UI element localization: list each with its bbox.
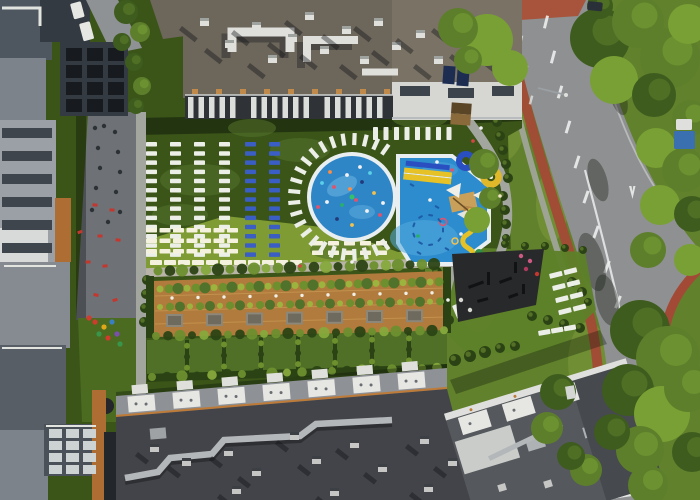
sun-lounger (146, 197, 157, 202)
swimmer (335, 217, 339, 221)
terrace-dormer (176, 380, 193, 390)
hvac-lid (330, 488, 339, 491)
roof-panel (448, 88, 474, 98)
hedge-row-bush (248, 263, 260, 275)
sun-lounger (170, 160, 181, 165)
hvac-lid (424, 484, 433, 487)
sun-lounger (194, 243, 205, 248)
sun-lounger (194, 160, 205, 165)
pergola-inner (288, 314, 301, 323)
planter-shrub (300, 281, 309, 290)
sun-lounger (178, 260, 190, 265)
planter-shrub (265, 283, 272, 290)
sun-lounger (187, 228, 198, 233)
hedge-row-bush (163, 331, 173, 341)
hedge-highlight (585, 299, 589, 303)
play-equipment (117, 341, 122, 346)
balcony (230, 97, 236, 118)
sun-lounger (200, 249, 211, 254)
sun-lounger (170, 206, 181, 211)
sun-lounger (160, 239, 171, 244)
sun-lounger-blue (245, 225, 256, 230)
planter-shrub (316, 300, 324, 308)
cafe-table (378, 292, 381, 295)
pool-fountain (350, 195, 355, 200)
sun-lounger (146, 160, 157, 165)
swimmer (345, 173, 349, 177)
hedge-row-bush (174, 330, 185, 341)
sun-lounger (170, 151, 181, 156)
hedge-highlight (502, 160, 507, 165)
sun-lounger (220, 260, 232, 265)
tree-highlight (506, 55, 524, 73)
roof-window (108, 65, 124, 78)
swimmer (350, 223, 354, 227)
planter-shrub (308, 280, 319, 291)
swimmer (316, 205, 320, 209)
hedge-row-bush (370, 261, 379, 270)
cafe-table (404, 292, 407, 295)
aerial-resort-photo (0, 0, 700, 500)
roof-window (83, 429, 96, 438)
sun-lounger (214, 239, 225, 244)
hedge-row-bush (201, 265, 212, 276)
hvac-lid (268, 55, 277, 58)
hedge-row-bush (176, 264, 188, 276)
hedge-row-bush (237, 264, 248, 275)
sun-lounger (219, 206, 230, 211)
sun-lounger (187, 249, 198, 254)
sun-lounger-blue (245, 197, 256, 202)
planter-shrub (325, 299, 335, 309)
patio-table (118, 170, 122, 174)
sun-lounger (394, 127, 399, 140)
hedge-row-bush (368, 328, 376, 336)
hedge-row-bush (252, 369, 262, 379)
sun-lounger (219, 243, 230, 248)
cafe-table (300, 294, 303, 297)
hedge-highlight (503, 235, 507, 239)
hut-roof-dark (451, 102, 472, 114)
hedge-row-bush (262, 264, 271, 273)
balcony (346, 97, 352, 118)
hedge-row-bush (426, 325, 437, 336)
sun-lounger (373, 127, 378, 140)
roof-panel (492, 86, 514, 96)
sun-lounger (187, 239, 198, 244)
hedge-row-bush (152, 332, 160, 340)
play-equipment (96, 331, 101, 336)
sun-lounger (200, 239, 211, 244)
swimmer (348, 187, 352, 191)
pedestrian (471, 139, 475, 143)
hedge-row-bush (334, 262, 343, 271)
hedge-row-bush (199, 330, 209, 340)
gym-item (519, 254, 523, 258)
roof-window (66, 99, 82, 112)
tree-highlight (123, 3, 135, 15)
play-equipment (109, 319, 114, 324)
sun-lounger-blue (245, 252, 256, 257)
sun-lounger (170, 188, 181, 193)
truck-trailer (674, 131, 695, 149)
sun-lounger (170, 142, 181, 147)
hedge-highlight (451, 356, 456, 361)
tree-highlight (582, 458, 598, 474)
planter-shrub (346, 281, 353, 288)
hedge-highlight (502, 241, 506, 245)
planter-shrub (355, 298, 365, 308)
sun-lounger (227, 249, 238, 254)
sun-lounger (328, 241, 339, 246)
planter-shrub (389, 277, 400, 288)
tree-highlight (608, 419, 626, 437)
hedge-highlight (499, 146, 504, 151)
hedge-row-bush (392, 259, 404, 271)
hvac-lid (360, 56, 369, 59)
sun-lounger-blue (245, 160, 256, 165)
hvac-lid (200, 18, 209, 21)
balcony (251, 97, 257, 118)
planter-shrub (408, 278, 417, 287)
planter-shrub (157, 286, 164, 293)
hvac-lid (312, 456, 321, 459)
planter-shrub (385, 297, 395, 307)
terrace-deck-white (352, 375, 380, 393)
sun-lounger (436, 127, 441, 140)
balcony (325, 97, 331, 118)
red-lounger (92, 203, 97, 206)
hvac-lid (378, 464, 387, 467)
tree-highlight (643, 470, 663, 490)
swimmer (372, 191, 376, 195)
sun-lounger-blue (269, 151, 280, 156)
patio-table (113, 130, 117, 134)
hedge-highlight (580, 247, 584, 251)
hedge-highlight (141, 304, 146, 309)
sun-lounger (219, 170, 230, 175)
hedge-row-bush (440, 326, 448, 334)
hedge-divider-bush (221, 342, 227, 348)
play-equipment (114, 331, 119, 336)
cafe-table (222, 295, 225, 298)
planter-shrub (307, 301, 313, 307)
solar-panel (442, 66, 455, 85)
hedge-divider-bush (221, 364, 227, 370)
hedge-row-bush (356, 260, 368, 272)
planter-shrub (335, 279, 346, 290)
patio-table (102, 124, 106, 128)
hedge-row-bush (212, 263, 224, 275)
terrace-deck-white (397, 371, 425, 389)
sun-lounger (384, 127, 389, 140)
sun-lounger-blue (269, 206, 280, 211)
sun-lounger (173, 239, 184, 244)
terrace-dormer (266, 372, 283, 382)
swimmer (320, 181, 324, 185)
roof-window (2, 128, 52, 138)
cafe-table (430, 291, 433, 294)
building-roof (0, 58, 46, 128)
tree-highlight (132, 55, 141, 64)
play-equipment (86, 315, 91, 320)
hedge-row-bush (406, 260, 415, 269)
patio-table (98, 166, 102, 170)
wood-accent (55, 198, 71, 262)
pedestrian (459, 232, 463, 236)
tree-highlight (474, 210, 487, 223)
sun-lounger (194, 234, 205, 239)
truck-cab (676, 119, 692, 130)
roof-window (49, 453, 62, 462)
hedge-row-bush (193, 372, 201, 380)
swimmer (340, 203, 344, 207)
terrace-dormer (221, 376, 238, 386)
hedge-highlight (466, 352, 471, 357)
balcony (188, 97, 194, 118)
cafe-table (274, 294, 277, 297)
sun-lounger (146, 179, 157, 184)
building-roof (0, 345, 66, 433)
water-highlight (349, 205, 375, 219)
roof-window (66, 82, 82, 95)
patio-table (118, 210, 122, 214)
gym-item (468, 308, 472, 312)
sun-lounger (219, 188, 230, 193)
hedge-divider-bush (295, 361, 301, 367)
hedge-divider-bush (332, 360, 338, 366)
lounger-cluster (146, 228, 238, 254)
red-lounger (98, 235, 103, 238)
sun-lounger (194, 179, 205, 184)
hedge-highlight (560, 320, 565, 325)
sun-lounger-blue (269, 197, 280, 202)
planter-shrub (397, 299, 403, 305)
sun-lounger (146, 188, 157, 193)
hvac-lid (252, 22, 261, 25)
sun-lounger (164, 260, 176, 265)
sun-lounger (219, 160, 230, 165)
skylight (150, 427, 167, 439)
planter-shrub (281, 280, 292, 291)
hedge-highlight (528, 312, 533, 317)
planter-shrub (166, 303, 174, 311)
tree-highlight (649, 79, 671, 101)
sun-lounger (194, 170, 205, 175)
planter-shrub (192, 284, 201, 293)
terrace-dormer (401, 361, 418, 371)
planter-shrub (157, 304, 163, 310)
hedge-highlight (501, 206, 506, 211)
planter-shrub (427, 278, 434, 285)
building-roof (0, 430, 48, 500)
sun-lounger-blue (269, 160, 280, 165)
hedge-divider-bush (406, 346, 412, 352)
sun-lounger (227, 228, 238, 233)
planter-shrub (367, 300, 373, 306)
sun-lounger (426, 127, 431, 140)
hedge-row-bush (309, 262, 320, 273)
hvac-lid (232, 486, 241, 489)
planter-shrub (354, 279, 363, 288)
red-lounger (109, 208, 114, 211)
patio-table (114, 190, 118, 194)
tree-highlight (655, 190, 675, 210)
sun-lounger (194, 142, 205, 147)
sun-lounger (160, 249, 171, 254)
gym-bar (487, 272, 490, 285)
hvac-lid (434, 56, 443, 59)
sun-lounger-blue (245, 206, 256, 211)
sun-lounger (146, 243, 157, 248)
hedge-highlight (140, 318, 145, 323)
patio-table (96, 146, 100, 150)
pedestrian (350, 260, 354, 264)
tree-highlight (608, 62, 632, 86)
terrace-dormer (311, 369, 328, 379)
sun-lounger (170, 179, 181, 184)
hedge-row-bush (148, 373, 156, 381)
dolphin-motif (442, 228, 444, 233)
roof-window (108, 99, 124, 112)
roof-window (83, 465, 96, 474)
roof-window (108, 82, 124, 95)
sun-lounger (146, 170, 157, 175)
sun-lounger (160, 228, 171, 233)
sun-lounger (192, 260, 204, 265)
tree-highlight (138, 25, 148, 35)
sun-lounger (415, 127, 420, 140)
planter-shrub (381, 279, 390, 288)
sun-lounger (194, 188, 205, 193)
planter-shrub (211, 284, 218, 291)
hedge-row-bush (235, 330, 245, 340)
hedge-highlight (562, 245, 566, 249)
hedge-row-bush (210, 329, 221, 340)
pergola-inner (248, 314, 261, 323)
patio-table (116, 150, 120, 154)
planter-shrub (196, 302, 204, 310)
balcony (283, 97, 289, 118)
tree-highlight (634, 432, 658, 456)
tree-highlight (632, 3, 658, 29)
swimmer (354, 198, 358, 202)
tree-highlight (568, 446, 582, 460)
balcony (220, 97, 226, 118)
patio-table (94, 186, 98, 190)
planter-shrub (226, 302, 234, 310)
chimney (384, 89, 390, 94)
planter-shrub (165, 284, 174, 293)
pedestrian (498, 194, 502, 198)
swimmer (360, 180, 364, 184)
sun-lounger-blue (245, 179, 256, 184)
tree-highlight (453, 13, 473, 33)
hedge-row-bush (238, 370, 246, 378)
chimney (288, 89, 294, 94)
sun-lounger (214, 249, 225, 254)
planter-shrub (415, 297, 425, 307)
sun-lounger-blue (245, 142, 256, 147)
balcony (335, 97, 341, 118)
hedge-divider-bush (369, 337, 375, 343)
chimney (360, 89, 366, 94)
terrace-deck-white (217, 387, 245, 405)
hedge-row-bush (282, 328, 293, 339)
sun-lounger (146, 216, 157, 221)
tree-highlight (660, 334, 692, 366)
terrace-dormer (356, 365, 373, 375)
sun-lounger (405, 127, 410, 140)
sun-lounger-blue (245, 243, 256, 248)
pedestrian (479, 126, 483, 130)
hedge-row-bush (207, 370, 217, 380)
hedge-row-bush (283, 369, 291, 377)
planter-shrub (273, 281, 282, 290)
tree-highlight (480, 153, 495, 168)
sun-lounger (170, 243, 181, 248)
sun-lounger (150, 260, 162, 265)
planter-shrub (184, 285, 191, 292)
sun-lounger (146, 228, 157, 233)
roof-window (66, 441, 79, 450)
gym-item (524, 267, 528, 271)
planter-shrub (435, 277, 444, 286)
patio-table (90, 208, 94, 212)
roof-window (49, 441, 62, 450)
swimmer (325, 200, 329, 204)
planter-shrub (295, 299, 305, 309)
red-lounger (115, 238, 120, 242)
roof-window (87, 99, 103, 112)
hedge-row-bush (284, 262, 296, 274)
swimmer (435, 160, 439, 164)
hedge-row-bush (390, 326, 401, 337)
terrace-deck-white (127, 394, 155, 412)
lawn-mottle (228, 119, 276, 137)
terrace-deck-white (262, 383, 290, 401)
sun-lounger (343, 134, 345, 146)
sun-lounger (173, 228, 184, 233)
hvac-lid (224, 448, 233, 451)
hedge-divider-bush (258, 362, 264, 368)
hedge-highlight (522, 243, 526, 247)
hvac-lid (288, 34, 297, 37)
planter-shrub (254, 281, 265, 292)
sun-lounger (364, 248, 367, 260)
roof-window (2, 243, 52, 253)
swimmer (381, 201, 385, 205)
hedge-row-bush (381, 260, 392, 271)
roof-window (49, 465, 62, 474)
hedge-row-bush (343, 327, 353, 337)
roof-window (2, 197, 52, 207)
sun-lounger-blue (245, 151, 256, 156)
roof-window (2, 151, 52, 161)
planter-shrub (217, 303, 223, 309)
pergola-inner (208, 315, 221, 324)
balcony-row (185, 95, 393, 119)
hedge-row-bush (260, 330, 268, 338)
patio-shadow (76, 112, 86, 320)
play-equipment (92, 319, 97, 324)
hedge-row-bush (428, 258, 440, 270)
patio-table (93, 126, 97, 130)
roof-window (87, 82, 103, 95)
hedge-row-bush (320, 261, 332, 273)
red-lounger (102, 264, 107, 267)
planter-shrub (173, 283, 184, 294)
